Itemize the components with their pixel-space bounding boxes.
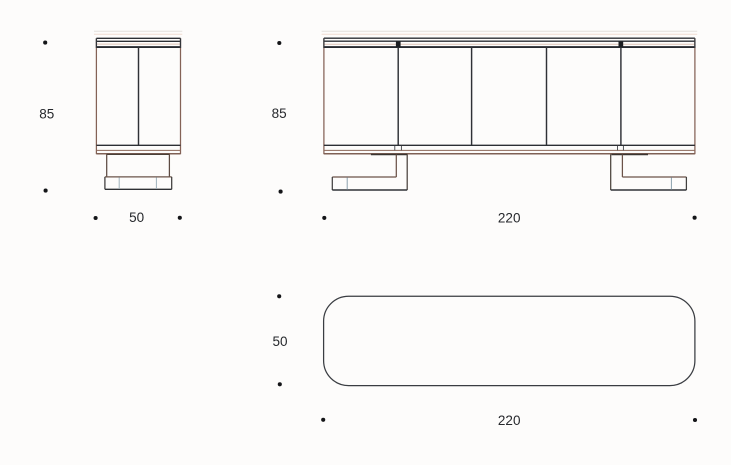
svg-text:220: 220 — [498, 413, 521, 428]
svg-text:85: 85 — [39, 107, 54, 122]
svg-text:85: 85 — [272, 106, 287, 121]
svg-text:50: 50 — [272, 334, 287, 349]
svg-text:50: 50 — [129, 210, 144, 225]
svg-text:220: 220 — [498, 210, 521, 225]
